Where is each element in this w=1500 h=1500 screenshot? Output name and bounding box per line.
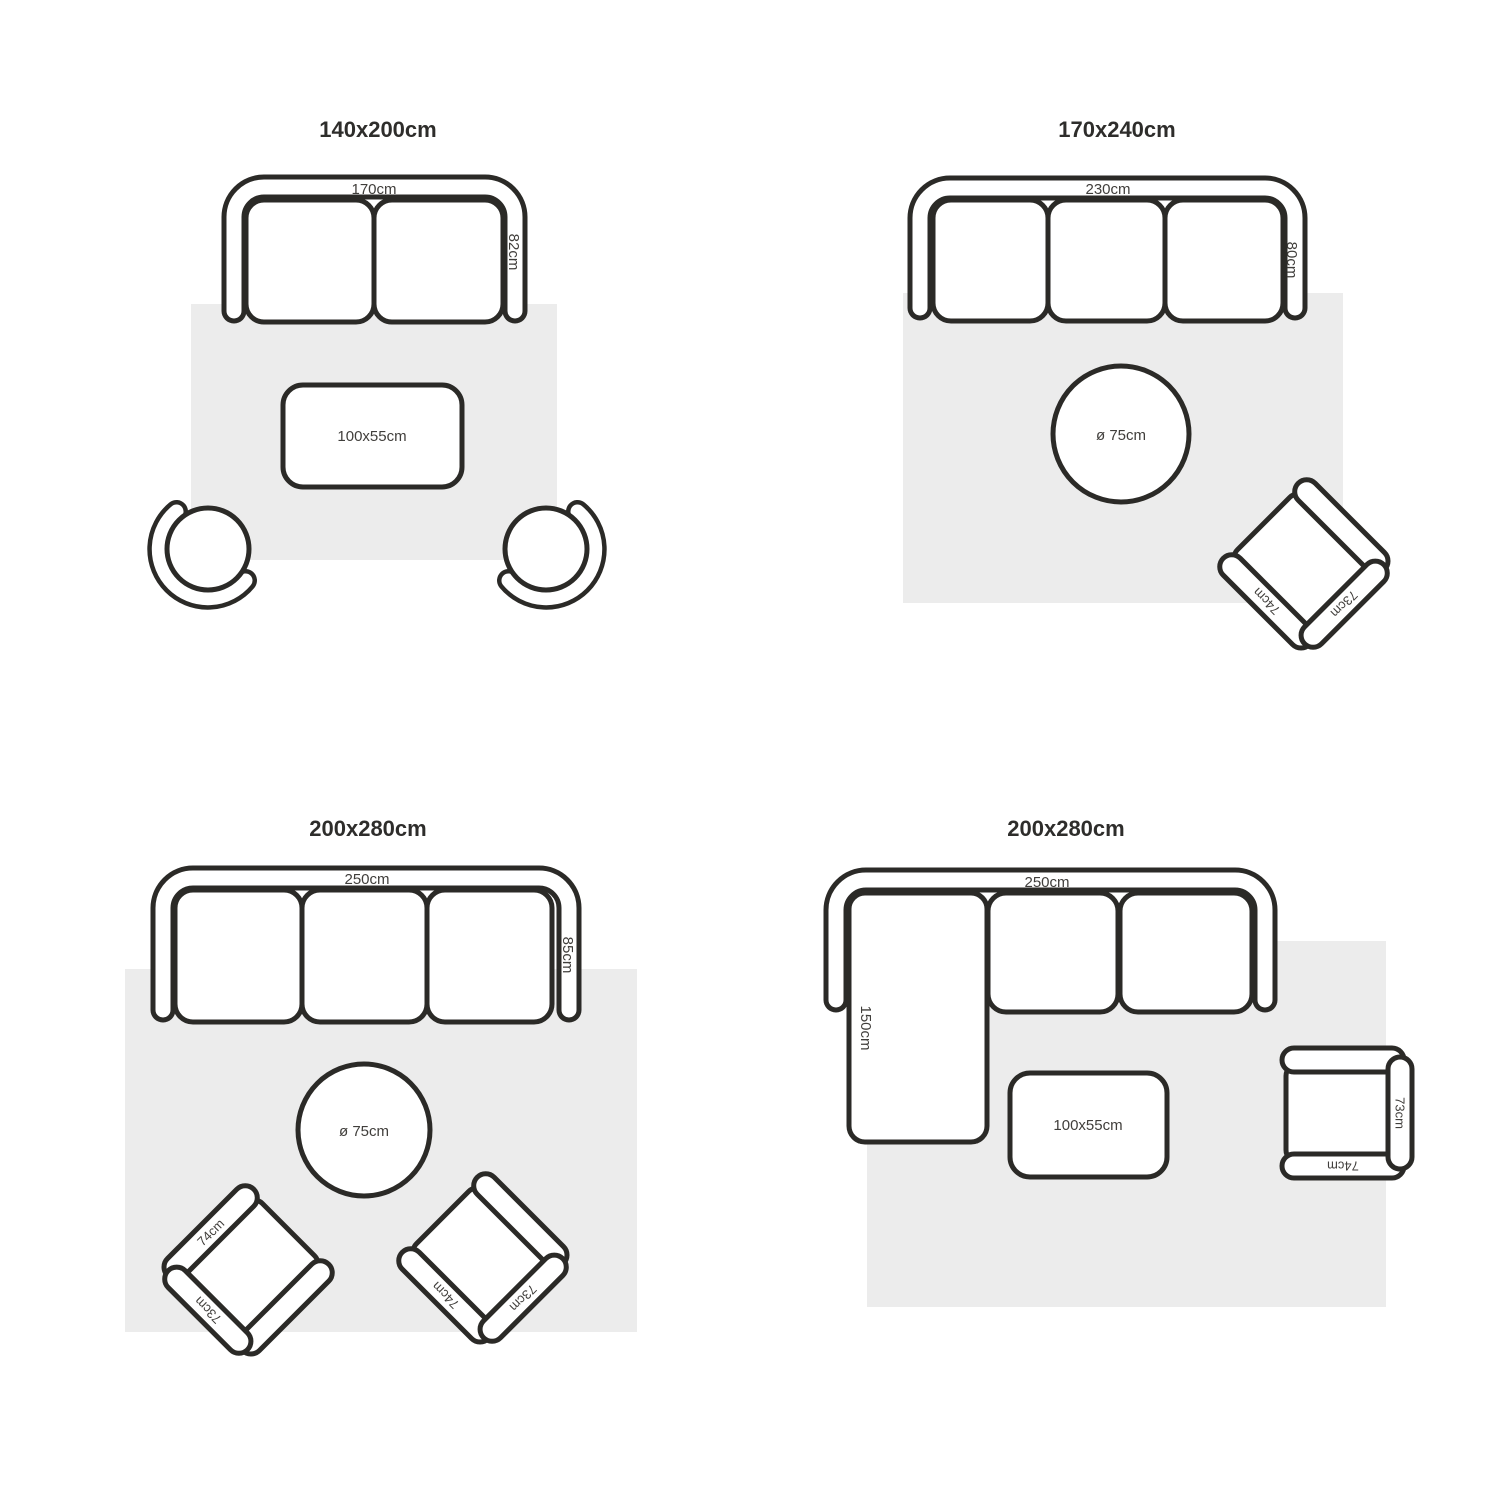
sofa-depth-label: 80cm xyxy=(1283,242,1300,279)
sofa-cushion xyxy=(246,200,374,322)
layout-200x280-b: 200x280cm 250cm 150cm 100x55cm 74cm 73cm xyxy=(836,816,1412,1307)
sofa-cushion xyxy=(175,890,302,1022)
armchair-seat xyxy=(1286,1064,1402,1162)
layout-170x240: 170x240cm 230cm 80cm ø 75cm 74cm 73cm xyxy=(903,117,1399,659)
sofa-cushion xyxy=(988,893,1118,1012)
armchair-back-label: 73cm xyxy=(1392,1097,1407,1129)
sofa-cushion xyxy=(933,200,1048,321)
sofa-cushion xyxy=(302,890,427,1022)
sofa-chaise-label: 150cm xyxy=(857,1005,874,1050)
sofa-cushion xyxy=(1120,893,1252,1012)
round-table-label: ø 75cm xyxy=(339,1123,389,1140)
coffee-table-label: 100x55cm xyxy=(1053,1117,1122,1134)
layout-title: 140x200cm xyxy=(319,117,436,142)
round-chair xyxy=(159,508,249,598)
sofa-width-label: 250cm xyxy=(1024,874,1069,891)
layout-title: 170x240cm xyxy=(1058,117,1175,142)
layout-title: 200x280cm xyxy=(1007,816,1124,841)
sofa-cushion xyxy=(1165,200,1283,321)
sofa-width-label: 250cm xyxy=(344,871,389,888)
layout-140x200: 140x200cm 170cm 82cm 100x55cm xyxy=(159,117,595,598)
layout-title: 200x280cm xyxy=(309,816,426,841)
sofa-width-label: 170cm xyxy=(351,181,396,198)
round-table-label: ø 75cm xyxy=(1096,427,1146,444)
sofa-width-label: 230cm xyxy=(1085,181,1130,198)
sofa-cushion xyxy=(374,200,503,322)
sofa-depth-label: 85cm xyxy=(559,937,576,974)
round-chair xyxy=(505,508,595,598)
sofa-cushion xyxy=(1048,200,1165,321)
armchair-side-label: 74cm xyxy=(1327,1158,1359,1173)
round-chair-seat xyxy=(167,508,249,590)
armchair: 74cm 73cm xyxy=(1282,1048,1412,1178)
rug-size-guide: 140x200cm 170cm 82cm 100x55cm 170x240cm xyxy=(0,0,1500,1500)
coffee-table-label: 100x55cm xyxy=(337,428,406,445)
sofa-cushion xyxy=(427,890,552,1022)
round-chair-seat xyxy=(505,508,587,590)
layout-200x280-a: 200x280cm 250cm 85cm ø 75cm 74cm 73cm 74… xyxy=(125,816,637,1365)
sofa-depth-label: 82cm xyxy=(505,234,522,271)
